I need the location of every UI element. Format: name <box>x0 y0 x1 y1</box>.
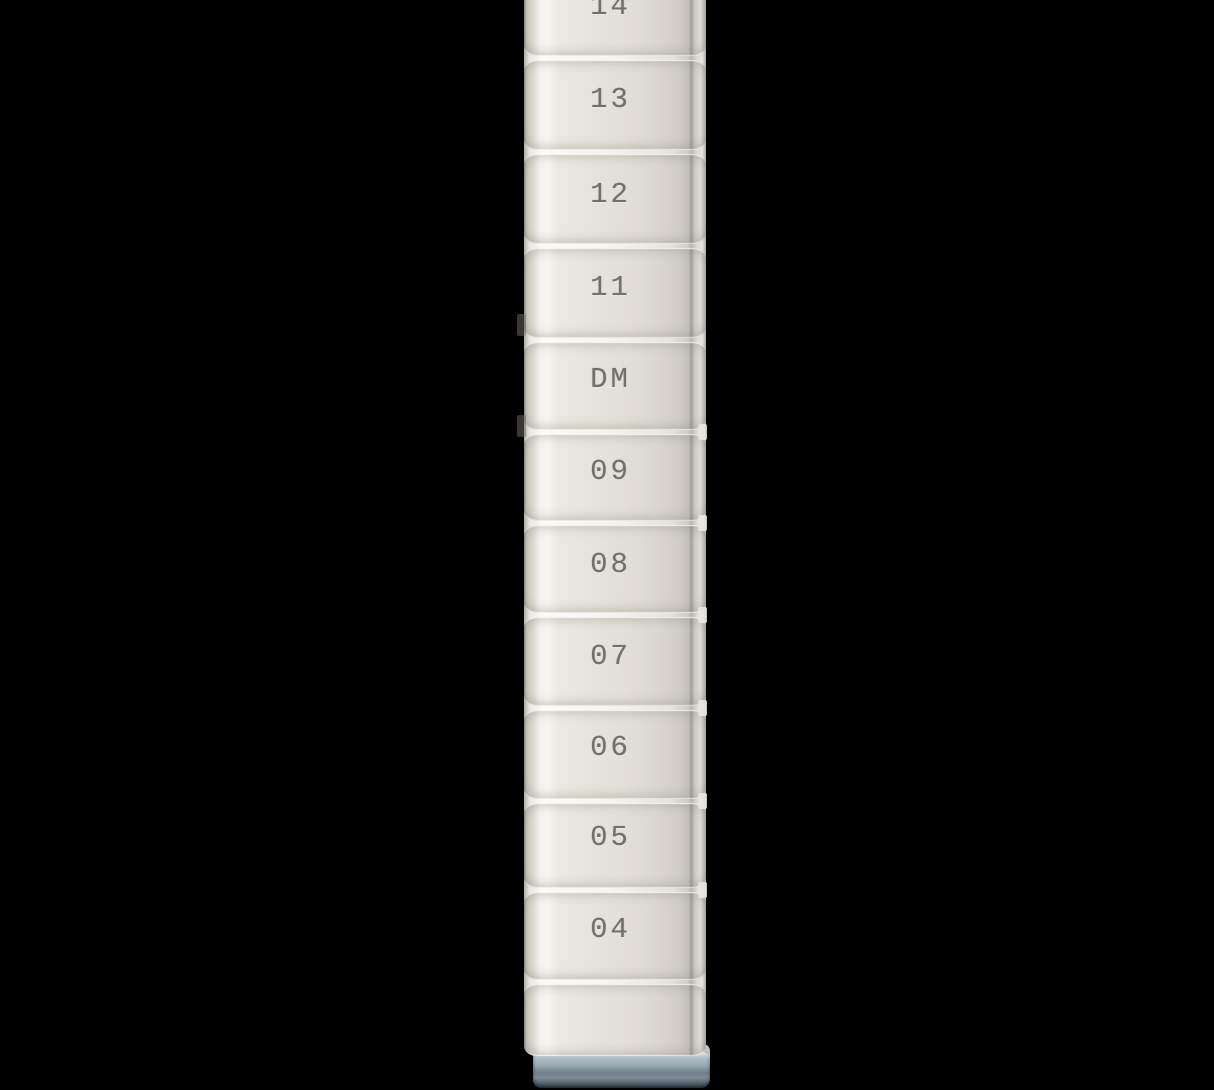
post-marking-dm: DM <box>524 364 694 396</box>
post-marking-05: 05 <box>524 822 694 854</box>
edge-notch <box>517 415 526 437</box>
post-marking-08: 08 <box>524 549 694 581</box>
post-marking-06: 06 <box>524 732 694 764</box>
post-marking-14: 14 <box>524 0 694 23</box>
edge-notch <box>698 793 707 809</box>
edge-notch <box>698 700 707 716</box>
edge-notch <box>517 314 526 336</box>
post-segment <box>524 984 706 1056</box>
post-marking-12: 12 <box>524 179 694 211</box>
edge-notch <box>698 515 707 531</box>
post-marking-07: 07 <box>524 641 694 673</box>
post-marking-11: 11 <box>524 272 694 304</box>
product-photo-canvas: 14 13 12 11 DM 09 08 07 06 05 04 <box>0 0 1214 1090</box>
edge-notch <box>698 424 707 440</box>
edge-notch <box>698 607 707 623</box>
shelving-post: 14 13 12 11 DM 09 08 07 06 05 04 <box>524 0 706 1090</box>
post-marking-09: 09 <box>524 456 694 488</box>
post-marking-04: 04 <box>524 914 694 946</box>
edge-notch <box>698 882 707 898</box>
post-marking-13: 13 <box>524 84 694 116</box>
